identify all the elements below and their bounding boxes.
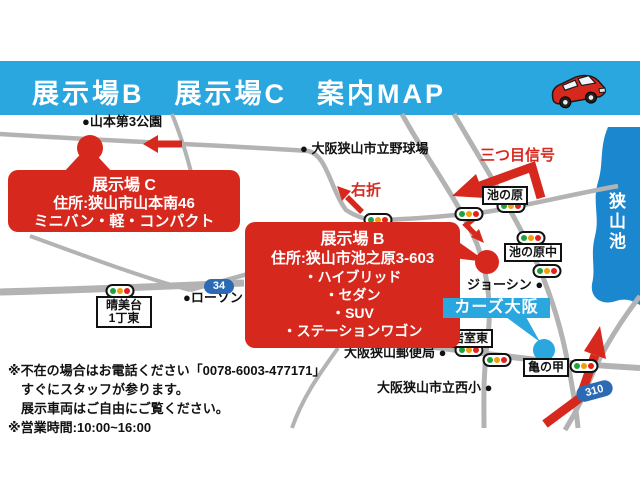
label-yamamoto-park: ●山本第3公園 (82, 114, 162, 129)
site-b-vehicle-item: ・ハイブリッド (245, 268, 460, 286)
site-b-callout: 展示場 B 住所:狭山市池之原3-603 ・ハイブリッド ・セダン ・SUV ・… (245, 222, 460, 348)
site-b-vehicle-item: ・ステーションワゴン (245, 322, 460, 340)
site-c-callout: 展示場 C 住所:狭山市山本南46 ミニバン・軽・コンパクト (8, 170, 240, 232)
site-b-vehicle-item: ・セダン (245, 286, 460, 304)
note-line: ※営業時間:10:00~16:00 (8, 418, 326, 437)
traffic-signal-icon (484, 354, 511, 366)
traffic-signal-icon (534, 265, 561, 277)
west-arrow-head (143, 135, 158, 153)
notes-block: ※不在の場合はお電話ください「0078-6003-477171」 すぐにスタッフ… (8, 361, 326, 437)
site-b-vehicle-item: ・SUV (245, 304, 460, 322)
note-line: 展示車両はご自由にご覧ください。 (8, 399, 326, 418)
label-ballpark: ● 大阪狭山市立野球場 (300, 141, 428, 156)
label-joshin: ジョーシン ● (467, 277, 543, 292)
signbox-harumidai-line2: 1丁東 (101, 312, 147, 325)
note-line: すぐにスタッフが参ります。 (8, 380, 326, 399)
signbox-ikenohara-naka: 池の原中 (504, 243, 562, 262)
label-nishi-elementary: 大阪狭山市立西小 ● (377, 380, 492, 395)
signbox-ikenohara: 池の原 (482, 186, 528, 205)
traffic-signal-icon (456, 208, 483, 220)
traffic-signal-icon (571, 360, 598, 372)
signbox-harumidai: 晴美台 1丁東 (96, 296, 152, 328)
label-turn-right: 右折 (351, 179, 381, 200)
site-c-address: 住所:狭山市山本南46 (8, 195, 240, 213)
road (30, 236, 190, 290)
site-c-marker (77, 135, 103, 161)
cars-osaka-pointer (506, 317, 540, 342)
third-signal-arrow-head (452, 174, 485, 198)
site-c-name: 展示場 C (8, 176, 240, 195)
north-arrow-head (584, 326, 606, 359)
note-line: ※不在の場合はお電話ください「0078-6003-477171」 (8, 361, 326, 380)
route-34-badge: 34 (204, 279, 234, 294)
site-b-name: 展示場 B (245, 230, 460, 249)
label-sayama-lake: 狭山池 (603, 192, 628, 252)
signbox-kamenoko: 亀の甲 (523, 358, 569, 377)
site-c-vehicles: ミニバン・軽・コンパクト (8, 213, 240, 231)
site-b-marker (475, 250, 499, 274)
label-third-signal: 三つ目信号 (480, 144, 555, 165)
map-guide-page: 展示場B 展示場C 案内MAP (0, 0, 640, 480)
site-b-address: 住所:狭山市池之原3-603 (245, 249, 460, 268)
cars-osaka-label: カーズ大阪 (443, 298, 550, 318)
